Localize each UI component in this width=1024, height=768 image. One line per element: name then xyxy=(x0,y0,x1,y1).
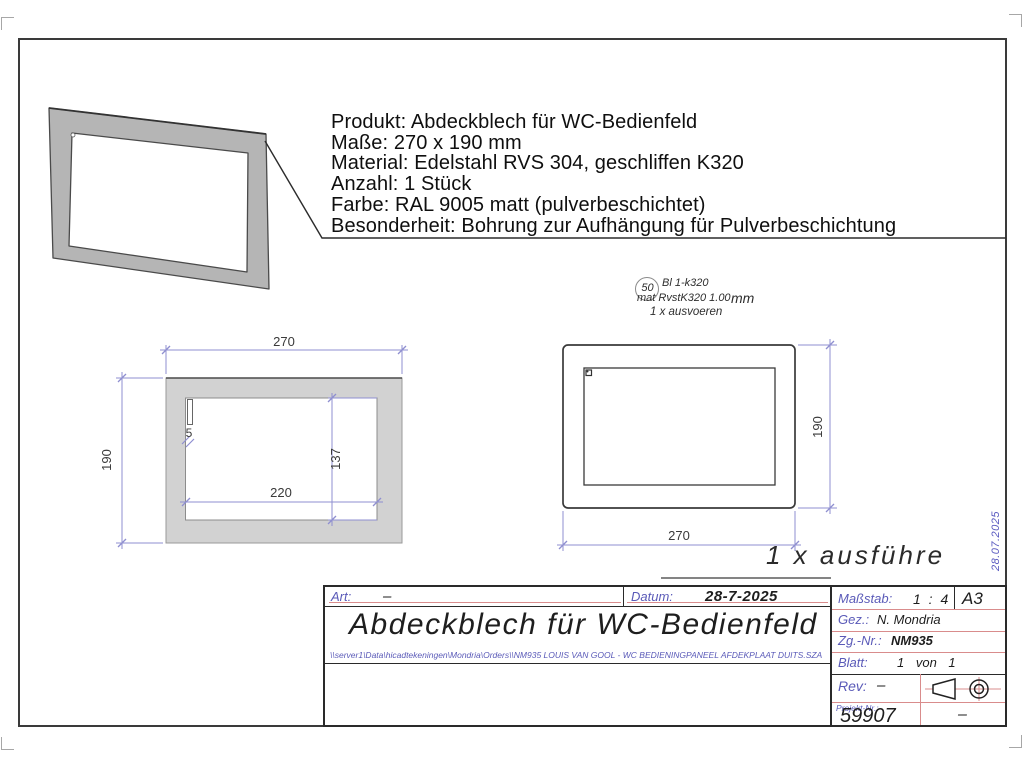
dim-front-inner-width: 220 xyxy=(270,485,292,500)
massstab-value: 1 : 4 xyxy=(913,591,950,607)
art-value: – xyxy=(383,588,391,605)
red-rule-art xyxy=(329,602,621,603)
massstab-label: Maßstab: xyxy=(838,591,892,606)
dim-front-outer-width: 270 xyxy=(273,334,295,349)
rear-view xyxy=(563,345,795,508)
rev-label: Rev: xyxy=(838,678,867,694)
red-rule-massstab xyxy=(832,609,1005,610)
balloon-line-2-unit: mm xyxy=(731,290,754,306)
dim-rear-height: 190 xyxy=(810,416,825,438)
projekt-value: 59907 xyxy=(840,706,896,726)
rev-value: – xyxy=(877,677,885,694)
front-view xyxy=(166,378,402,543)
dim-front-outer-height: 190 xyxy=(99,449,114,471)
red-rule-gez xyxy=(832,631,1005,632)
projection-symbol-icon xyxy=(925,677,1001,701)
dim-rear-width: 270 xyxy=(668,528,690,543)
note-line: Material: Edelstahl RVS 304, geschliffen… xyxy=(331,153,1009,174)
note-line: Anzahl: 1 Stück xyxy=(331,174,1009,195)
balloon-line-2: mat RvstK320 1.00 xyxy=(637,292,731,304)
projekt-right-value: – xyxy=(920,706,1005,724)
balloon-line-1: Bl 1-k320 xyxy=(662,277,708,289)
title-block-row1-divider xyxy=(325,606,830,607)
product-notes: Produkt: Abdeckblech für WC-Bedienfeld M… xyxy=(331,112,1009,236)
note-line: Maße: 270 x 190 mm xyxy=(331,133,1009,154)
gez-value: N. Mondria xyxy=(877,612,941,627)
note-line: Farbe: RAL 9005 matt (pulverbeschichtet) xyxy=(331,195,1009,216)
note-line: Besonderheit: Bohrung zur Aufhängung für… xyxy=(331,216,1009,237)
dim-front-inner-height: 137 xyxy=(328,448,343,470)
quantity-callout: 1 x ausführe xyxy=(766,540,945,571)
red-rule-zgnr xyxy=(832,652,1005,653)
side-date: 28.07.2025 xyxy=(990,503,1004,579)
art-label: Art: xyxy=(331,589,351,604)
blatt-value: 1 von 1 xyxy=(897,655,956,670)
format-value: A3 xyxy=(962,589,983,609)
gez-label: Gez.: xyxy=(838,612,869,627)
isometric-view xyxy=(49,108,269,289)
zgnr-label: Zg.-Nr.: xyxy=(838,633,882,648)
title-block-section-divider xyxy=(830,587,832,725)
hanging-slot xyxy=(188,400,193,425)
hanging-hole-iso xyxy=(71,133,75,137)
title-block-path-divider xyxy=(325,663,830,664)
title-block-rev-divider xyxy=(832,674,1005,675)
drawing-title: Abdeckblech für WC-Bedienfeld xyxy=(349,608,818,642)
datum-label: Datum: xyxy=(631,589,673,604)
dim-front-slot: 5 xyxy=(186,426,193,440)
balloon-line-3: 1 x ausvoeren xyxy=(650,306,722,318)
title-block-datum-divider xyxy=(623,587,624,606)
datum-value: 28-7-2025 xyxy=(705,588,778,605)
title-block: Art: – Datum: 28-7-2025 Abdeckblech für … xyxy=(323,585,1007,727)
note-line: Produkt: Abdeckblech für WC-Bedienfeld xyxy=(331,112,1009,133)
title-block-format-divider xyxy=(954,587,955,609)
blatt-label: Blatt: xyxy=(838,655,868,670)
file-path: \\server1\Data\hicadtekeningen\Mondria\O… xyxy=(330,650,828,660)
zgnr-value: NM935 xyxy=(891,633,933,648)
technical-drawing-sheet: 270 190 220 137 5 190 270 xyxy=(0,0,1024,768)
